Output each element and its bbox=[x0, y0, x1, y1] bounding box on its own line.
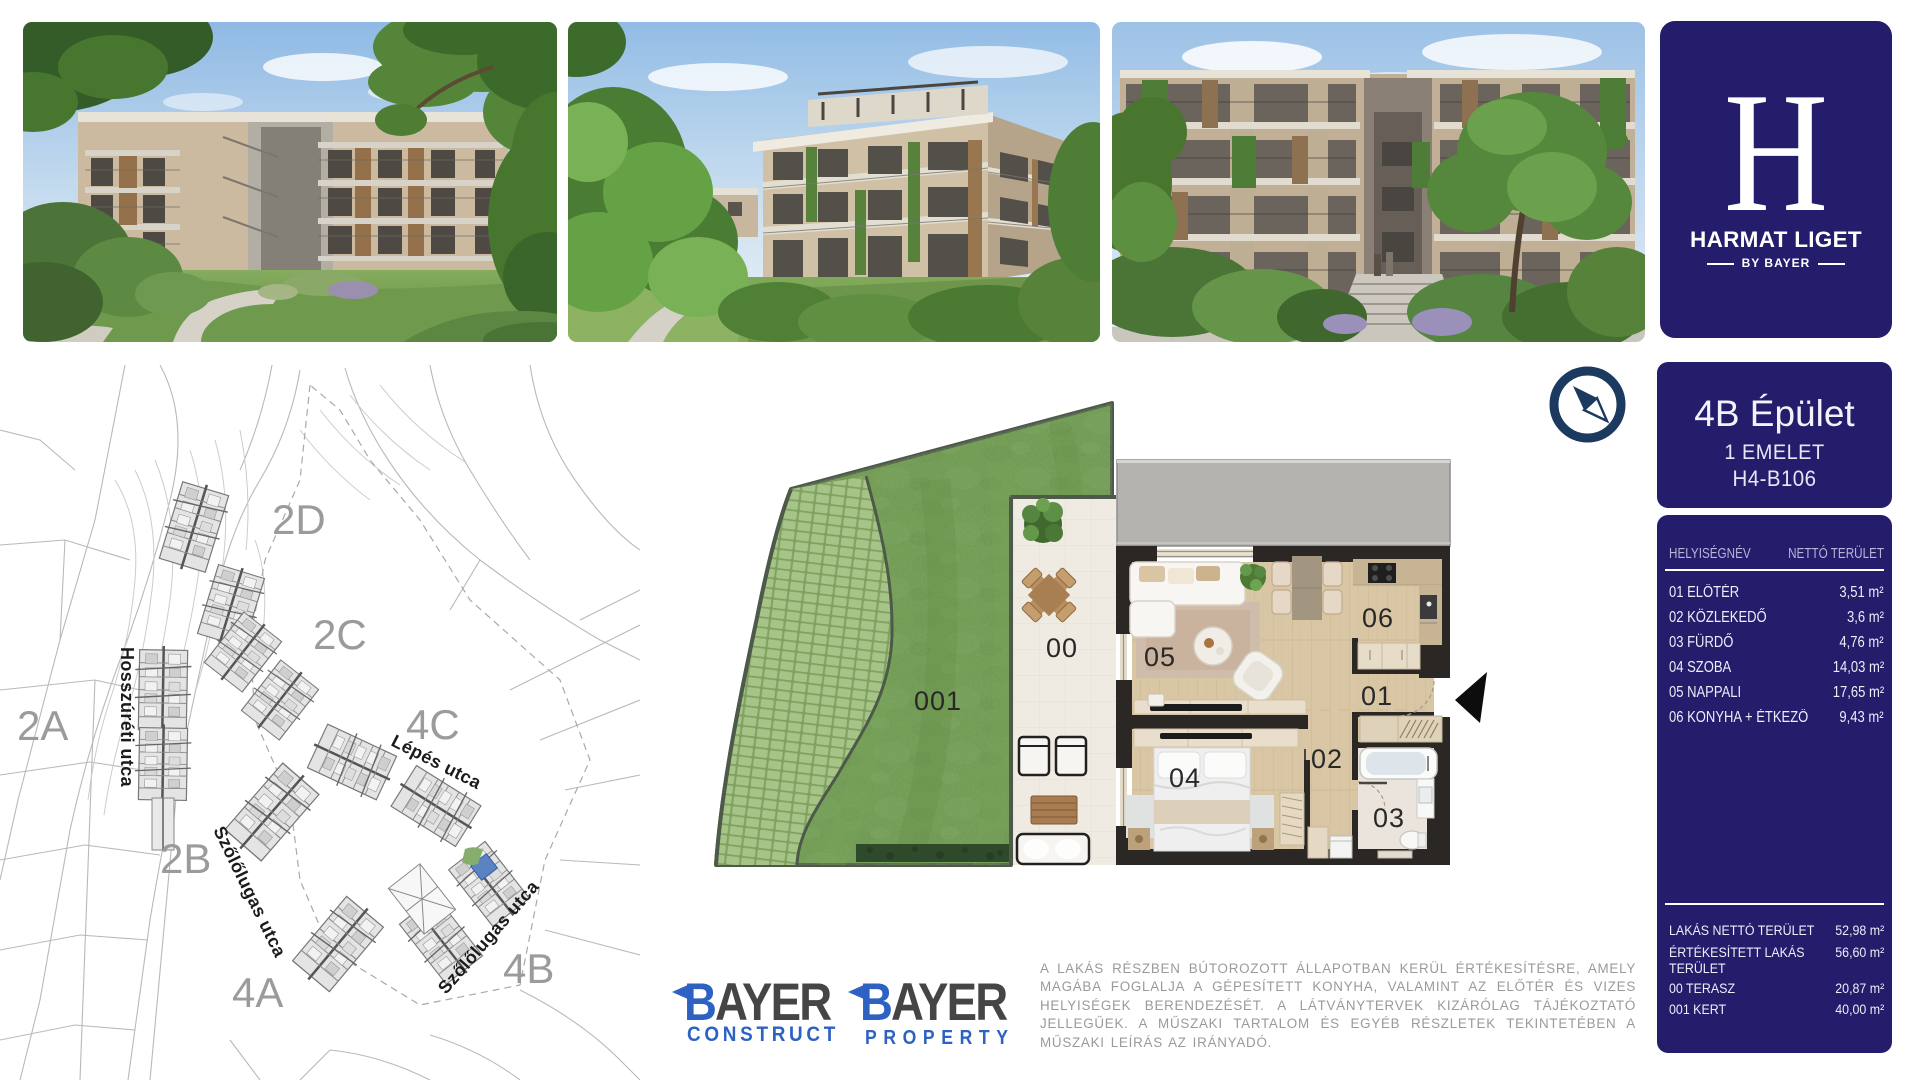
svg-text:Hosszúréti utca: Hosszúréti utca bbox=[117, 647, 137, 788]
svg-text:AYER: AYER bbox=[891, 973, 1008, 1032]
svg-text:CONSTRUCT: CONSTRUCT bbox=[687, 1023, 839, 1046]
svg-text:2C: 2C bbox=[313, 611, 367, 658]
svg-text:00: 00 bbox=[1046, 633, 1078, 663]
svg-text:04: 04 bbox=[1169, 763, 1201, 793]
svg-text:03: 03 bbox=[1373, 803, 1405, 833]
svg-text:B: B bbox=[860, 973, 891, 1032]
svg-text:2D: 2D bbox=[272, 496, 326, 543]
svg-text:02: 02 bbox=[1311, 744, 1343, 774]
svg-text:2A: 2A bbox=[17, 702, 68, 749]
svg-text:4B: 4B bbox=[503, 945, 554, 992]
svg-text:PROPERTY: PROPERTY bbox=[865, 1026, 1015, 1048]
svg-text:4A: 4A bbox=[232, 969, 283, 1016]
svg-text:05: 05 bbox=[1144, 642, 1176, 672]
svg-text:06: 06 bbox=[1362, 603, 1394, 633]
svg-text:2B: 2B bbox=[160, 835, 211, 882]
svg-text:001: 001 bbox=[914, 686, 962, 716]
svg-text:01: 01 bbox=[1361, 681, 1393, 711]
